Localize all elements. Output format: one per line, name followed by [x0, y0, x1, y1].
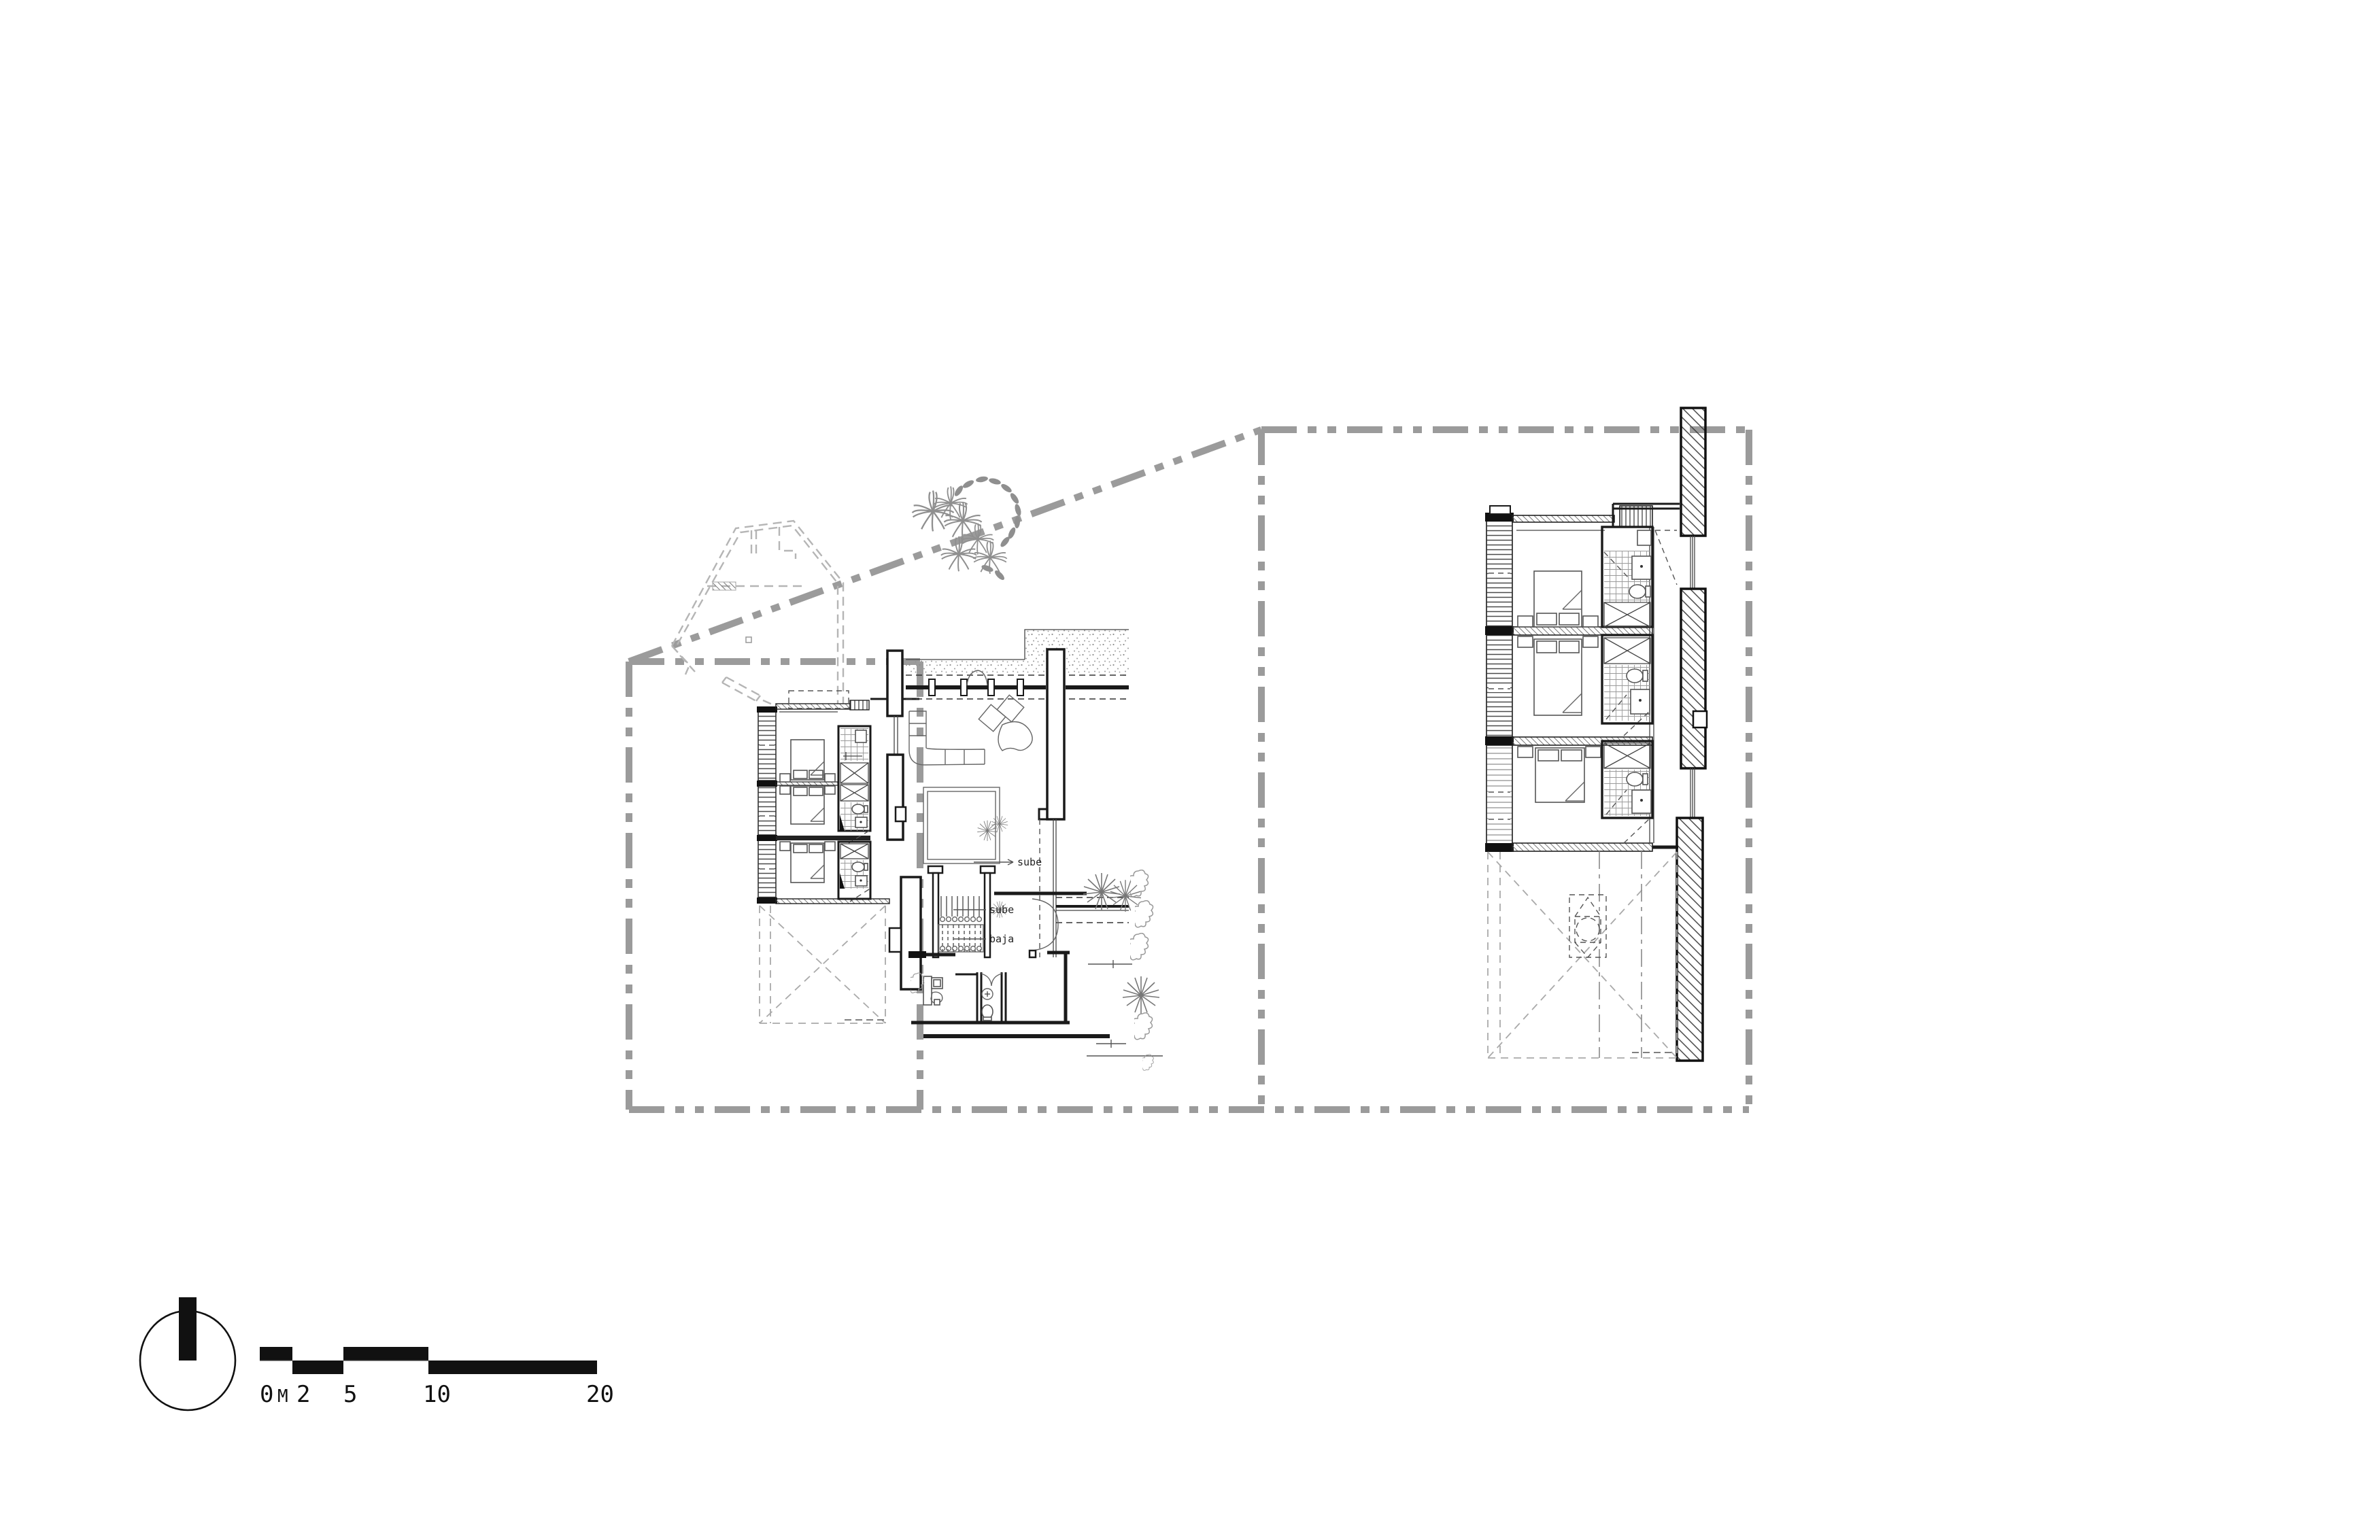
deck-outline [760, 906, 885, 1023]
detail-bed [1518, 571, 1598, 647]
scale-tick-0: 0 [260, 1381, 273, 1408]
bathroom-strip [838, 726, 870, 902]
main-house: sube [887, 630, 1163, 1070]
detail-plan [1485, 408, 1707, 1061]
scale-tick-5: 5 [343, 1381, 357, 1408]
scale-unit: M [277, 1386, 288, 1407]
bed [791, 786, 824, 824]
scale-bar: 0 M 2 5 10 20 [260, 1347, 614, 1408]
scale-tick-10: 10 [423, 1381, 451, 1408]
detail-bed [1518, 747, 1601, 802]
bed [791, 740, 824, 780]
service-rooms [908, 953, 1110, 1036]
desk [923, 976, 942, 1005]
north-arrow [140, 1297, 235, 1410]
detail-deck [1488, 851, 1677, 1058]
callout-connector-line [629, 430, 1261, 662]
detail-bed [1534, 639, 1582, 715]
bedroom-wing [757, 699, 919, 1023]
grand-piano [998, 722, 1032, 751]
stair-down-label: baja [989, 933, 1014, 945]
stair: sube baja [928, 866, 1014, 957]
north-needle-icon [179, 1297, 197, 1361]
patio-court [923, 787, 1000, 863]
tree-cluster [913, 475, 1023, 581]
ramp-up-label: sube [1017, 856, 1042, 868]
drawing-sheet: sube [0, 0, 2380, 1540]
garden-strip [1083, 870, 1163, 1071]
stair-up-label: sube [989, 904, 1014, 916]
retaining-piers [1677, 408, 1707, 1061]
detail-louver-wall [1485, 506, 1514, 852]
lounge-chairs [979, 695, 1032, 751]
bed [791, 843, 824, 883]
deck-tub [1569, 895, 1606, 957]
leaf-scatter [953, 475, 1023, 581]
terrace-paving [906, 630, 1129, 674]
detail-bathrooms [1602, 527, 1652, 818]
floor-plan-canvas: sube [0, 0, 2380, 1540]
scale-tick-2: 2 [296, 1381, 310, 1408]
scale-tick-20: 20 [586, 1381, 614, 1408]
wall-column [1047, 649, 1064, 819]
